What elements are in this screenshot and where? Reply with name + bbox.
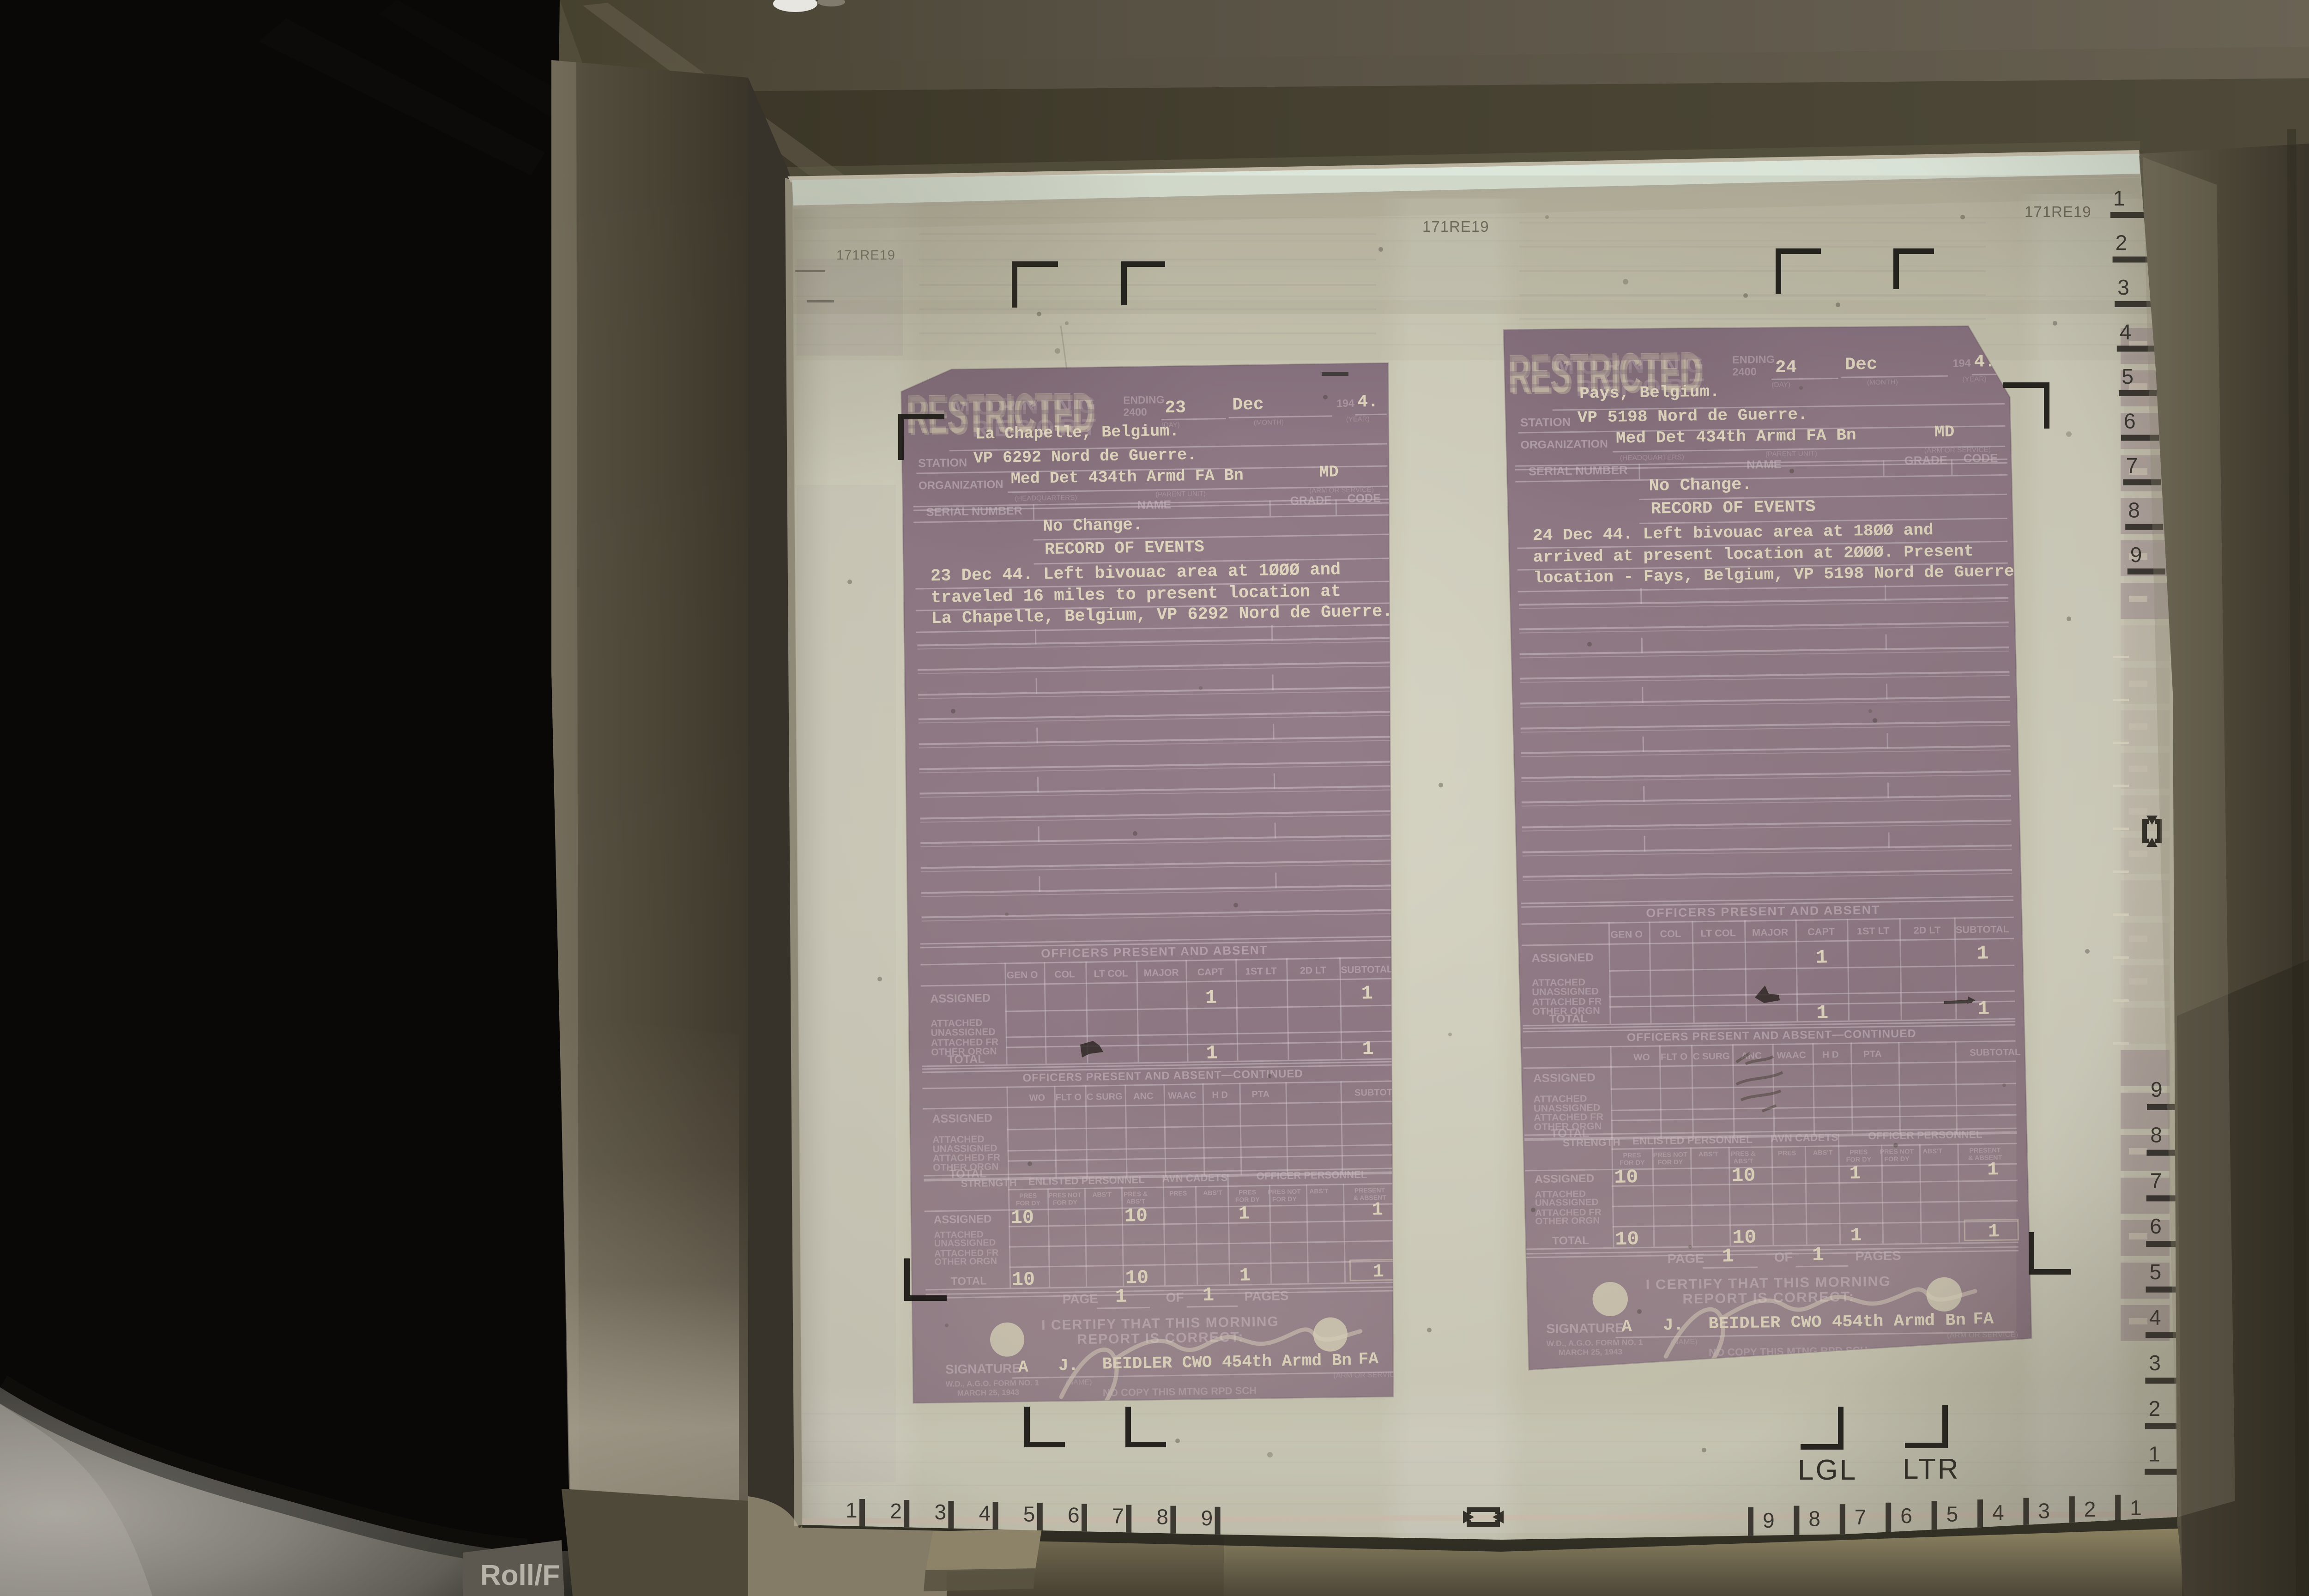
svg-text:Roll/F: Roll/F <box>480 1560 560 1591</box>
